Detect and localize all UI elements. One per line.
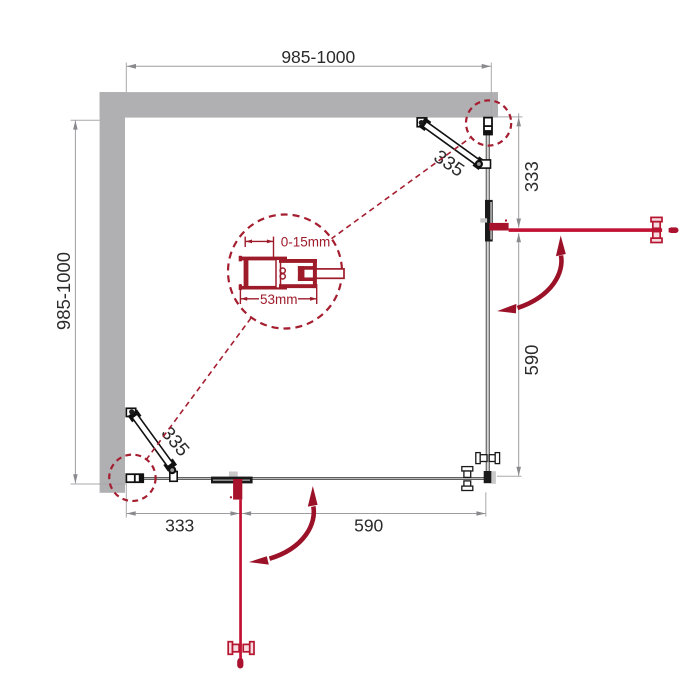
svg-text:985-1000: 985-1000 [53, 252, 74, 330]
svg-text:590: 590 [354, 516, 383, 536]
svg-text:985-1000: 985-1000 [281, 47, 355, 67]
svg-text:333: 333 [165, 516, 194, 536]
svg-text:333: 333 [521, 161, 542, 192]
svg-text:0-15mm: 0-15mm [281, 234, 331, 249]
svg-text:53mm: 53mm [260, 292, 298, 307]
svg-text:590: 590 [521, 345, 542, 376]
